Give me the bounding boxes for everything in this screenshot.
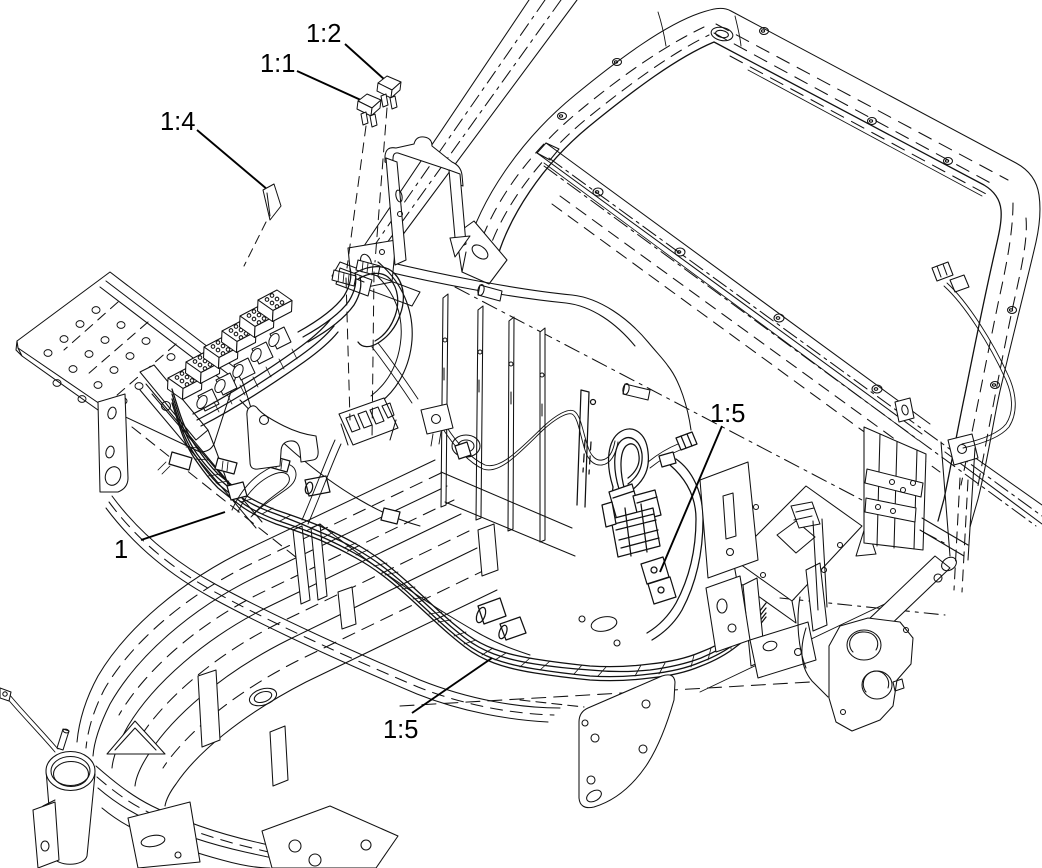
svg-text:1:2: 1:2 <box>306 20 341 48</box>
svg-text:1:5: 1:5 <box>710 400 745 428</box>
svg-text:1: 1 <box>114 536 128 564</box>
svg-text:1:1: 1:1 <box>260 50 295 78</box>
svg-text:1:4: 1:4 <box>160 108 195 136</box>
svg-text:1:5: 1:5 <box>383 716 418 744</box>
